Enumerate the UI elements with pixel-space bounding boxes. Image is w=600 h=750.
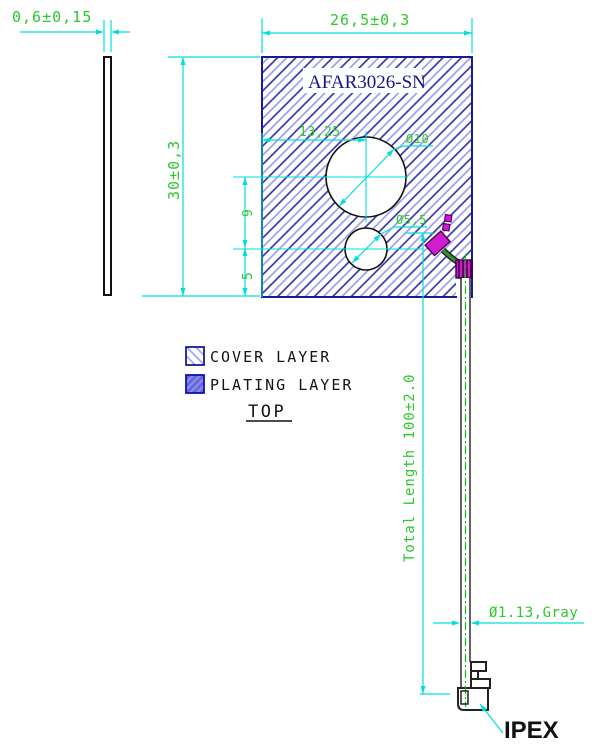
offset-dim-label: 13,25	[299, 125, 341, 140]
cable-dia-label: Ø1.13,Gray	[489, 605, 578, 621]
plating-layer-swatch	[186, 375, 204, 393]
plating-layer-label: PLATING LAYER	[210, 376, 353, 394]
height-dim-label: 30±0,3	[165, 140, 183, 200]
small-hole-label: Ø5,5	[396, 213, 427, 227]
connector-stub	[471, 671, 478, 679]
solder-dot-1	[445, 215, 452, 222]
thickness-dim-label: 0,6±0,15	[12, 8, 92, 26]
total-length-label: Total Length 100±2.0	[402, 373, 418, 562]
side-view-board	[104, 57, 111, 295]
connector-flange-1	[471, 662, 486, 671]
side-view	[104, 57, 111, 295]
large-hole-label: Ø10	[406, 132, 429, 146]
antenna-drawing: 0,6±0,15 AFAR3026-SN 26,5±0,3	[0, 0, 600, 750]
spacing-5-label: 5	[241, 272, 256, 280]
cover-layer-label: COVER LAYER	[210, 348, 331, 366]
connector-leader	[480, 704, 503, 733]
legend: COVER LAYER PLATING LAYER TOP	[186, 347, 353, 422]
thickness-arrows	[96, 30, 119, 35]
width-dim-label: 26,5±0,3	[330, 11, 410, 29]
spacing-9-label: 9	[241, 209, 256, 217]
connector-flange-2	[471, 679, 490, 688]
part-number-label: AFAR3026-SN	[308, 72, 426, 93]
connector-label: IPEX	[504, 717, 559, 744]
ferrule	[456, 260, 472, 278]
view-label: TOP	[248, 402, 286, 422]
cover-layer-swatch	[186, 347, 204, 365]
drawing-canvas: 0,6±0,15 AFAR3026-SN 26,5±0,3	[0, 0, 600, 750]
solder-dot-2	[443, 224, 450, 231]
